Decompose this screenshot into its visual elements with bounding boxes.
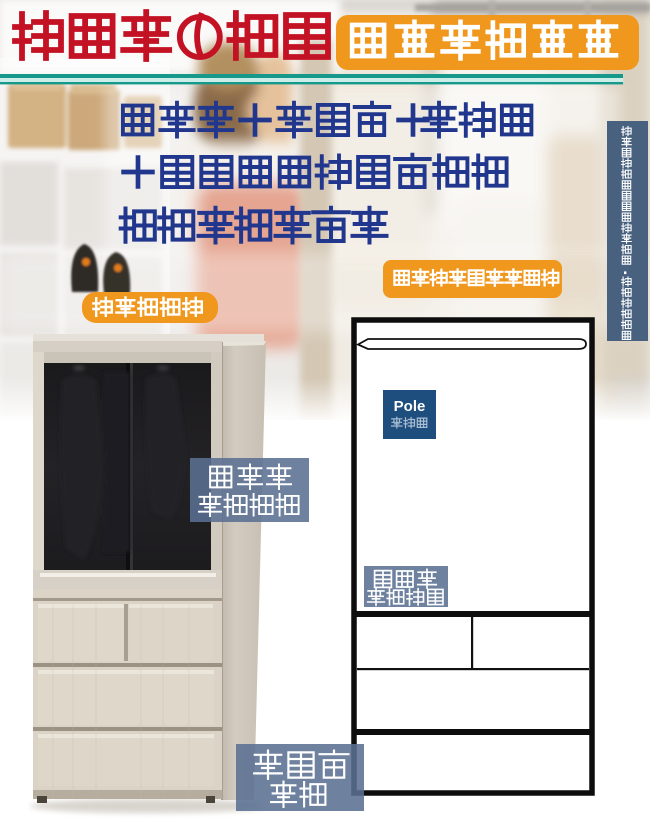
svg-text:Pole: Pole bbox=[394, 398, 426, 415]
